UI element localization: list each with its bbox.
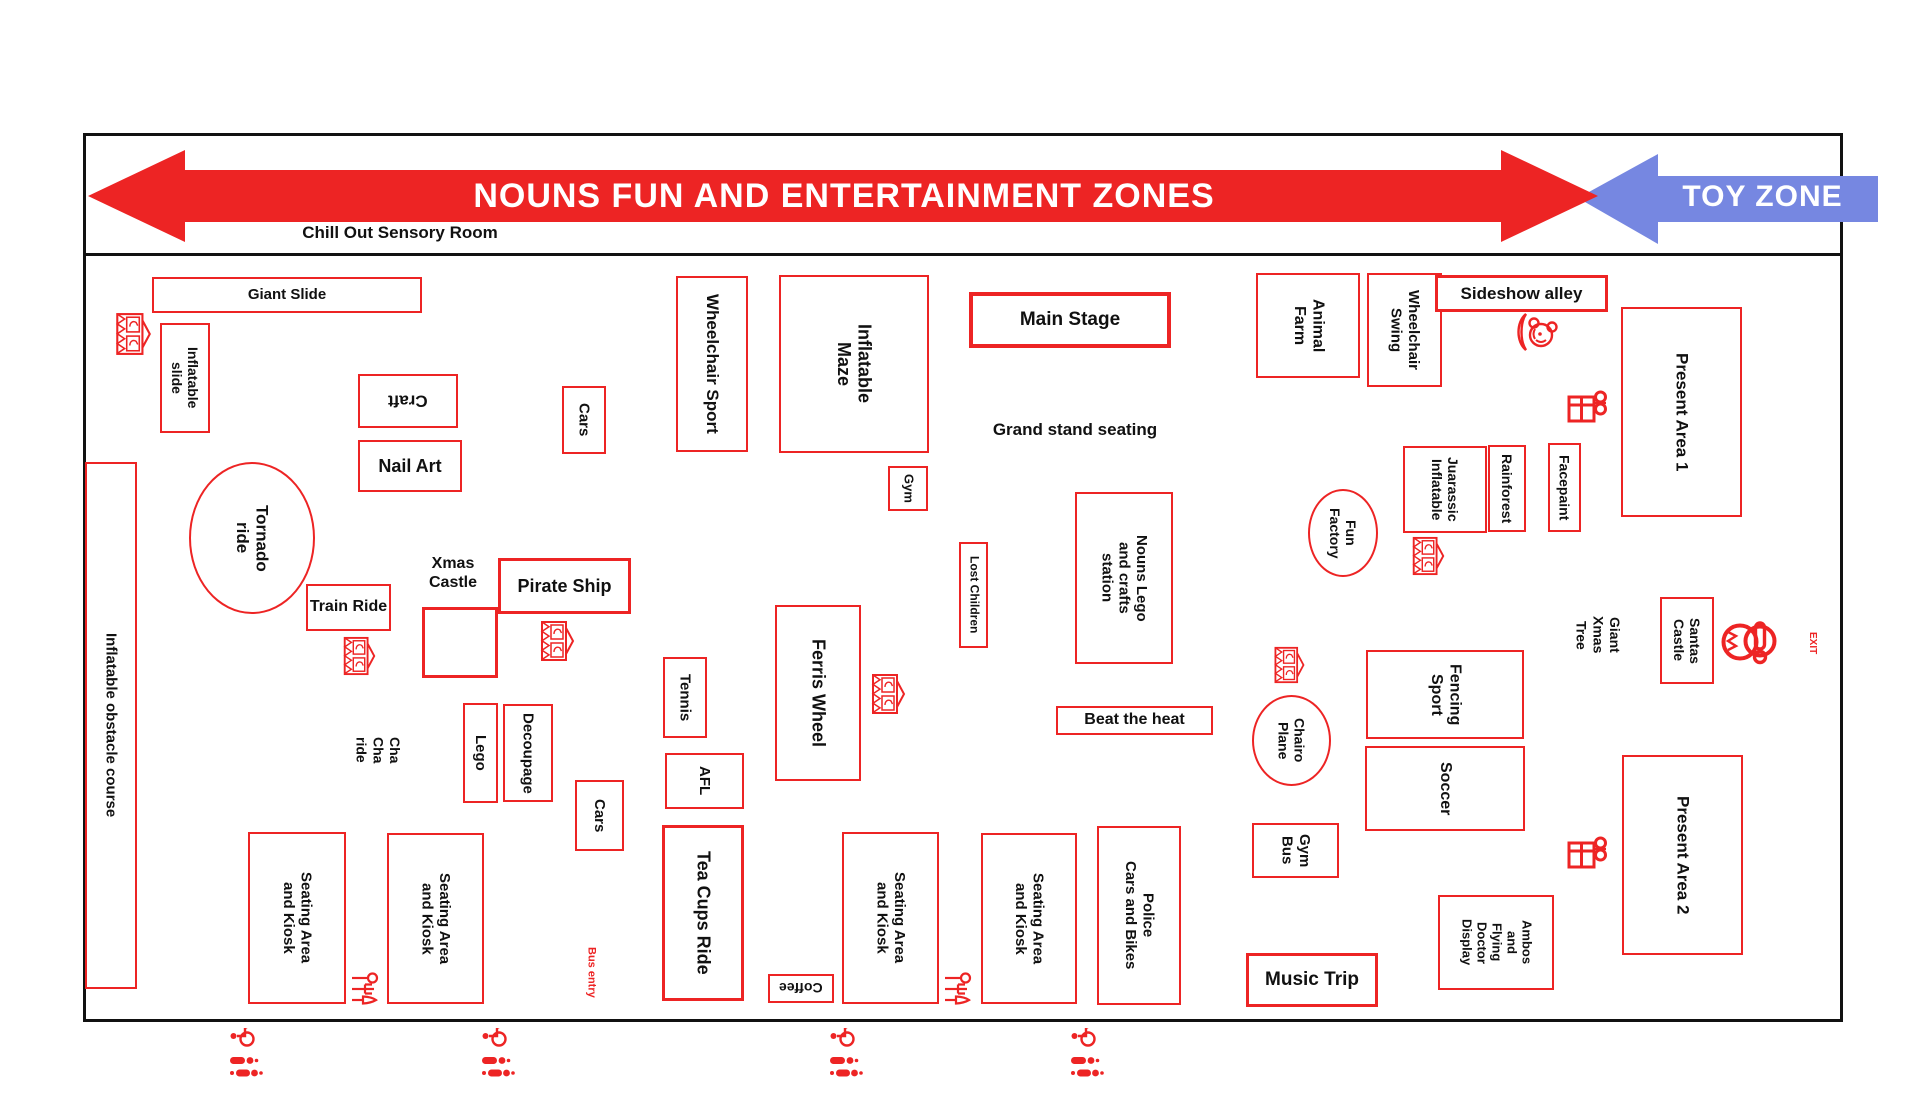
area-gym-bus: Gym Bus — [1252, 823, 1339, 878]
area-present-area-1: Present Area 1 — [1621, 307, 1742, 517]
coffee-label: Coffee — [779, 980, 823, 996]
area-seating-kiosk-1: Seating Area and Kiosk — [248, 832, 346, 1004]
giant-xmas-tree-label: Giant Xmas Tree — [1572, 610, 1624, 660]
area-nail-art: Nail Art — [358, 440, 462, 492]
area-tornado-ride: Tornado ride — [189, 462, 315, 614]
present-icon — [1567, 386, 1609, 424]
sensory-room-label: Chill Out Sensory Room — [270, 220, 530, 246]
area-ferris-wheel: Ferris Wheel — [775, 605, 861, 781]
area-seating-kiosk-3: Seating Area and Kiosk — [842, 832, 939, 1004]
area-tea-cups-ride: Tea Cups Ride — [662, 825, 744, 1001]
carousel-icon — [1271, 646, 1307, 684]
carousel-icon — [113, 312, 153, 356]
area-seating-kiosk-2: Seating Area and Kiosk — [387, 833, 484, 1004]
area-santas-castle: Santas Castle — [1660, 597, 1714, 684]
carousel-icon — [869, 673, 907, 715]
area-wheelchair-swing: Wheelchair Swing — [1367, 273, 1442, 387]
craft-label: Craft — [388, 391, 428, 411]
area-cars-bottom: Cars — [575, 780, 624, 851]
area-chairo-plane: Chairo Plane — [1252, 695, 1331, 786]
cha-cha-ride-label: Cha Cha ride — [352, 727, 404, 773]
area-craft: Craft — [358, 374, 458, 428]
accessible-toilet-icon — [480, 1028, 526, 1080]
area-fun-factory: Fun Factory — [1308, 489, 1378, 577]
area-coffee: Coffee — [768, 974, 834, 1003]
area-gym: Gym — [888, 466, 928, 511]
area-train-ride: Train Ride — [306, 584, 391, 631]
area-soccer: Soccer — [1365, 746, 1525, 831]
event-map: NOUNS FUN AND ENTERTAINMENT ZONES TOY ZO… — [0, 0, 1920, 1103]
area-inflatable-maze: Inflatable Maze — [779, 275, 929, 453]
bus-entry-label: Bus entry — [583, 944, 599, 1000]
area-rainforest: Rainforest — [1488, 445, 1526, 532]
area-nouns-lego-station: Nouns Lego and crafts station — [1075, 492, 1173, 664]
area-lego: Lego — [463, 703, 498, 803]
area-music-trip: Music Trip — [1246, 953, 1378, 1007]
area-ambos-display: Ambos and Flying Doctor Display — [1438, 895, 1554, 990]
area-giant-slide: Giant Slide — [152, 277, 422, 313]
present-icon — [1567, 831, 1609, 871]
area-tennis: Tennis — [663, 657, 707, 738]
carousel-icon — [340, 636, 378, 676]
banner-divider — [83, 253, 1843, 256]
accessible-toilet-icon — [1069, 1028, 1115, 1080]
area-present-area-2: Present Area 2 — [1622, 755, 1743, 955]
xmas-castle-label: Xmas Castle — [408, 553, 498, 593]
area-beat-the-heat: Beat the heat — [1056, 706, 1213, 735]
santa-icon — [1718, 616, 1780, 670]
grand-stand-seating-label: Grand stand seating — [960, 417, 1190, 443]
accessible-toilet-icon — [228, 1028, 274, 1080]
area-inflatable-slide: Inflatable slide — [160, 323, 210, 433]
area-cars-top: Cars — [562, 386, 606, 454]
area-afl: AFL — [665, 753, 744, 809]
area-decoupage: Decoupage — [503, 704, 553, 802]
area-sideshow-alley: Sideshow alley — [1435, 275, 1608, 312]
area-main-stage: Main Stage — [969, 292, 1171, 348]
area-facepaint: Facepaint — [1548, 443, 1581, 532]
kiosk-cutlery-icon — [350, 972, 380, 1006]
area-seating-kiosk-4: Seating Area and Kiosk — [981, 833, 1077, 1004]
carousel-icon — [1410, 536, 1446, 576]
carousel-icon — [538, 620, 576, 662]
area-animal-farm: Animal Farm — [1256, 273, 1360, 378]
exit-label: EXIT — [1804, 628, 1820, 658]
area-juarassic-inflatable: Juarassic Inflatable — [1403, 446, 1487, 533]
kiosk-cutlery-icon — [943, 972, 973, 1006]
area-inflatable-obstacle-course: Inflatable obstacle course — [85, 462, 137, 989]
area-wheelchair-sport: Wheelchair Sport — [676, 276, 748, 452]
area-fencing-sport: Fencing Sport — [1366, 650, 1524, 739]
accessible-toilet-icon — [828, 1028, 874, 1080]
area-lost-children: Lost Children — [959, 542, 988, 648]
area-pirate-ship: Pirate Ship — [498, 558, 631, 614]
toy-zone-title: TOY ZONE — [1655, 166, 1870, 228]
area-xmas-castle — [422, 607, 498, 678]
area-police-cars-bikes: Police Cars and Bikes — [1097, 826, 1181, 1005]
clown-icon — [1510, 312, 1558, 354]
